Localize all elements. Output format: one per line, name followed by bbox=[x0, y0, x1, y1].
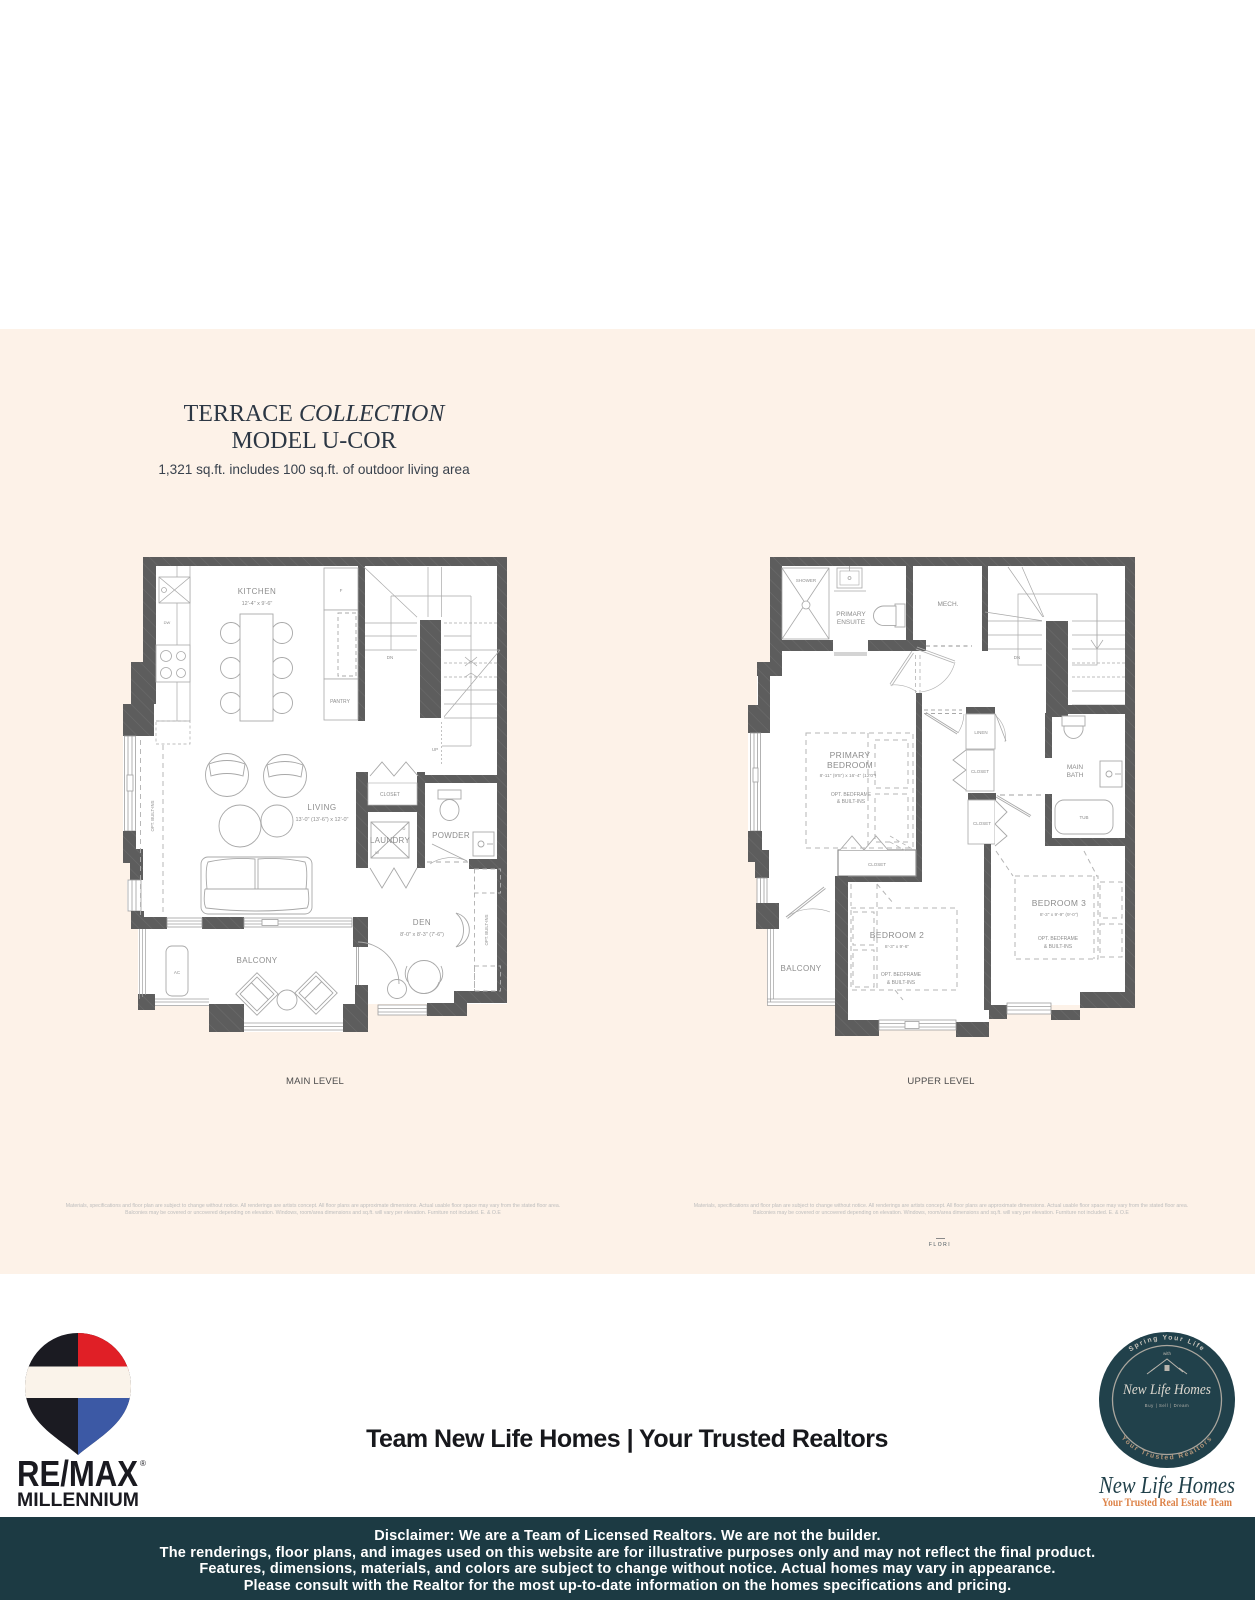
svg-text:LINEN: LINEN bbox=[974, 730, 987, 735]
svg-text:RE/MAX: RE/MAX bbox=[17, 1453, 138, 1494]
svg-text:UP: UP bbox=[432, 747, 438, 752]
svg-text:New Life Homes: New Life Homes bbox=[1098, 1473, 1235, 1499]
svg-text:SHOWER: SHOWER bbox=[796, 578, 817, 583]
svg-text:OPT. BUILT-INS: OPT. BUILT-INS bbox=[484, 914, 489, 945]
svg-text:8'-3" x 9'-9" (9'-0"): 8'-3" x 9'-9" (9'-0") bbox=[1040, 912, 1079, 918]
svg-text:with: with bbox=[1163, 1351, 1171, 1356]
svg-text:New Life Homes: New Life Homes bbox=[1122, 1382, 1211, 1398]
svg-text:BATH: BATH bbox=[1067, 772, 1084, 779]
svg-text:CLOSET: CLOSET bbox=[868, 862, 886, 867]
svg-text:CLOSET: CLOSET bbox=[971, 769, 989, 774]
svg-text:MAIN: MAIN bbox=[1067, 764, 1084, 771]
svg-text:PANTRY: PANTRY bbox=[330, 699, 350, 705]
svg-text:OPT. BEDFRAME: OPT. BEDFRAME bbox=[1038, 936, 1079, 942]
svg-text:F: F bbox=[340, 588, 343, 593]
svg-text:LAUNDRY: LAUNDRY bbox=[370, 836, 411, 845]
svg-text:13'-0" (13'-6") x 12'-0": 13'-0" (13'-6") x 12'-0" bbox=[295, 817, 348, 823]
svg-text:POWDER: POWDER bbox=[432, 831, 470, 840]
svg-text:PRIMARY: PRIMARY bbox=[836, 611, 866, 618]
svg-text:OPT. BEDFRAME: OPT. BEDFRAME bbox=[831, 792, 872, 798]
svg-text:BEDROOM: BEDROOM bbox=[827, 760, 873, 770]
svg-text:DN: DN bbox=[387, 655, 394, 660]
svg-text:Your Trusted Real Estate Team: Your Trusted Real Estate Team bbox=[1102, 1497, 1232, 1509]
svg-text:& BUILT-INS: & BUILT-INS bbox=[837, 799, 866, 805]
svg-text:TUB: TUB bbox=[1080, 815, 1089, 820]
svg-text:BEDROOM 3: BEDROOM 3 bbox=[1032, 898, 1087, 908]
svg-text:CLOSET: CLOSET bbox=[973, 821, 991, 826]
svg-text:8'-11" (9'5") x 16'-4" (12'0": 8'-11" (9'5") x 16'-4" (12'0") bbox=[820, 773, 877, 779]
svg-text:BALCONY: BALCONY bbox=[780, 964, 821, 973]
svg-text:DEN: DEN bbox=[413, 918, 431, 927]
svg-text:BALCONY: BALCONY bbox=[236, 956, 277, 965]
svg-text:& BUILT-INS: & BUILT-INS bbox=[887, 980, 916, 986]
svg-text:AC: AC bbox=[174, 970, 181, 975]
svg-text:MILLENNIUM: MILLENNIUM bbox=[17, 1489, 139, 1511]
svg-text:BEDROOM 2: BEDROOM 2 bbox=[870, 930, 925, 940]
svg-text:LIVING: LIVING bbox=[307, 803, 336, 812]
svg-text:KITCHEN: KITCHEN bbox=[238, 587, 277, 596]
svg-text:DN: DN bbox=[1014, 655, 1021, 660]
svg-text:®: ® bbox=[140, 1459, 146, 1468]
svg-text:Buy | Sell | Dream: Buy | Sell | Dream bbox=[1145, 1403, 1189, 1408]
svg-text:12'-4" x 9'-6": 12'-4" x 9'-6" bbox=[242, 601, 273, 607]
svg-text:PRIMARY: PRIMARY bbox=[830, 750, 871, 760]
svg-text:OPT. BEDFRAME: OPT. BEDFRAME bbox=[881, 972, 922, 978]
svg-text:8'-0" x 8'-3" (7'-6"): 8'-0" x 8'-3" (7'-6") bbox=[400, 932, 444, 938]
svg-text:& BUILT-INS: & BUILT-INS bbox=[1044, 944, 1073, 950]
svg-text:ENSUITE: ENSUITE bbox=[837, 619, 866, 626]
svg-text:DW: DW bbox=[164, 620, 171, 625]
svg-text:W: W bbox=[375, 850, 379, 855]
svg-text:MECH.: MECH. bbox=[938, 601, 959, 608]
svg-text:D: D bbox=[403, 826, 406, 831]
svg-text:8'-3" x 9'-6": 8'-3" x 9'-6" bbox=[885, 944, 909, 950]
svg-text:CLOSET: CLOSET bbox=[380, 792, 400, 798]
svg-text:OPT. BUILT-INS: OPT. BUILT-INS bbox=[150, 800, 155, 831]
